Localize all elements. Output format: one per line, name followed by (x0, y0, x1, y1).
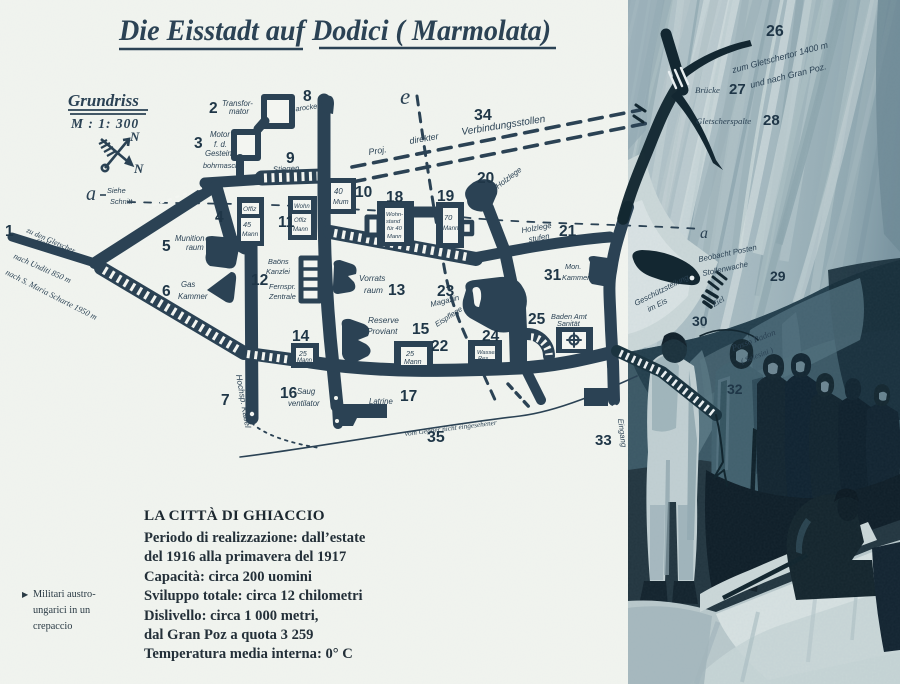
svg-text:Grundriss: Grundriss (68, 91, 139, 110)
svg-text:Motor: Motor (210, 130, 230, 139)
svg-text:Siehe: Siehe (107, 186, 126, 195)
svg-text:5: 5 (162, 238, 171, 255)
svg-text:45: 45 (243, 220, 252, 229)
svg-text:Wohn: Wohn (294, 204, 310, 210)
svg-text:29: 29 (770, 268, 786, 284)
svg-text:Reserve: Reserve (368, 315, 399, 325)
svg-text:Mann: Mann (404, 359, 422, 366)
svg-text:17: 17 (400, 388, 417, 405)
svg-text:21: 21 (559, 223, 577, 240)
svg-text:Sviluppo totale: circa 12 chil: Sviluppo totale: circa 12 chilometri (144, 588, 363, 604)
svg-text:e: e (400, 84, 410, 109)
svg-text:Mann: Mann (293, 227, 309, 233)
svg-text:Periodo di realizzazione: dall: Periodo di realizzazione: dall’estate (144, 530, 366, 546)
svg-text:f. d.: f. d. (214, 140, 227, 149)
svg-text:22: 22 (431, 338, 448, 355)
svg-text:Mann: Mann (443, 225, 459, 232)
svg-text:a: a (86, 183, 96, 205)
svg-text:stand: stand (386, 219, 401, 225)
svg-text:15: 15 (412, 321, 430, 338)
svg-text:Vorrats: Vorrats (359, 273, 385, 283)
svg-text:33: 33 (595, 432, 612, 449)
svg-text:25: 25 (528, 311, 546, 328)
svg-text:14: 14 (292, 328, 310, 345)
svg-text:Mum: Mum (333, 199, 349, 206)
svg-text:raum: raum (186, 243, 204, 252)
svg-text:3: 3 (194, 135, 203, 152)
svg-text:del 1916 alla primavera del 19: del 1916 alla primavera del 1917 (144, 549, 346, 565)
svg-text:25: 25 (298, 351, 307, 358)
svg-text:27: 27 (729, 81, 746, 98)
svg-text:70: 70 (444, 213, 453, 222)
svg-text:Saug: Saug (297, 387, 316, 396)
svg-text:Schnitt: Schnitt (110, 197, 133, 206)
svg-text:32: 32 (727, 381, 743, 397)
svg-text:24: 24 (482, 328, 500, 345)
svg-text:34: 34 (474, 107, 492, 124)
svg-text:Mann: Mann (387, 234, 402, 240)
svg-text:2: 2 (209, 100, 218, 117)
svg-text:19: 19 (437, 188, 455, 205)
svg-text:raum: raum (364, 285, 383, 295)
svg-text:Mon.: Mon. (565, 262, 581, 271)
svg-text:18: 18 (386, 189, 404, 206)
svg-text:7: 7 (221, 392, 230, 409)
svg-text:28: 28 (763, 112, 780, 129)
svg-text:Militari austro-: Militari austro- (33, 589, 96, 600)
svg-text:40: 40 (334, 187, 343, 196)
svg-text:Mann: Mann (242, 231, 259, 238)
svg-text:Kammer: Kammer (178, 292, 208, 301)
svg-text:▶: ▶ (22, 590, 29, 599)
svg-text:Wohn-: Wohn- (386, 212, 403, 218)
svg-text:Gas: Gas (181, 280, 195, 289)
svg-text:Gletscherspalte: Gletscherspalte (696, 116, 751, 126)
svg-text:1: 1 (5, 223, 14, 240)
svg-text:Gestein: Gestein (205, 149, 232, 158)
svg-text:Kammer: Kammer (562, 273, 590, 282)
svg-text:LA CITTÀ DI GHIACCIO: LA CITTÀ DI GHIACCIO (144, 507, 325, 524)
svg-text:Brücke: Brücke (695, 85, 720, 95)
svg-text:Dislivello: circa 1 000 metri,: Dislivello: circa 1 000 metri, (144, 608, 319, 624)
svg-text:Capacità: circa 200 uomini: Capacità: circa 200 uomini (144, 569, 312, 585)
svg-text:Fernspr.: Fernspr. (269, 282, 296, 291)
svg-text:4: 4 (215, 209, 224, 226)
svg-text:25: 25 (405, 349, 415, 358)
svg-text:N: N (129, 129, 140, 144)
svg-text:30: 30 (692, 313, 708, 329)
svg-text:crepaccio: crepaccio (33, 621, 72, 632)
svg-text:a: a (700, 225, 708, 242)
svg-text:Temperatura media interna: 0°: Temperatura media interna: 0° C (144, 646, 353, 662)
svg-text:N: N (133, 161, 144, 176)
svg-text:31: 31 (544, 267, 562, 284)
svg-text:mator: mator (229, 107, 249, 116)
svg-text:Offiz: Offiz (294, 218, 306, 224)
svg-text:10: 10 (355, 184, 372, 201)
svg-text:Die Eisstadt auf Dodici ( Marm: Die Eisstadt auf Dodici ( Marmolata) (118, 14, 551, 47)
svg-text:ungarici in un: ungarici in un (33, 605, 90, 616)
svg-text:ventilator: ventilator (288, 399, 320, 408)
svg-text:M : 1: 300: M : 1: 300 (70, 116, 139, 131)
svg-text:Munition: Munition (175, 234, 204, 243)
svg-text:20: 20 (477, 170, 494, 187)
svg-text:Proviant: Proviant (367, 326, 398, 336)
svg-text:Baöns: Baöns (268, 257, 289, 266)
svg-text:Latrine: Latrine (369, 397, 394, 406)
svg-text:Mann: Mann (297, 358, 313, 364)
svg-text:26: 26 (766, 23, 784, 40)
svg-text:Offiz: Offiz (243, 206, 257, 213)
svg-text:Stiegen: Stiegen (273, 164, 300, 174)
svg-text:dal Gran Poz a quota 3 259: dal Gran Poz a quota 3 259 (144, 627, 313, 643)
svg-text:für 40: für 40 (387, 226, 403, 232)
svg-text:Zentrale: Zentrale (268, 292, 296, 301)
svg-text:bohrmasch.: bohrmasch. (203, 161, 241, 170)
svg-text:13: 13 (388, 282, 406, 299)
svg-text:Sanität: Sanität (557, 319, 581, 328)
svg-text:6: 6 (162, 283, 171, 300)
svg-text:Kanzlei: Kanzlei (266, 267, 290, 276)
svg-text:Res.: Res. (478, 356, 490, 362)
